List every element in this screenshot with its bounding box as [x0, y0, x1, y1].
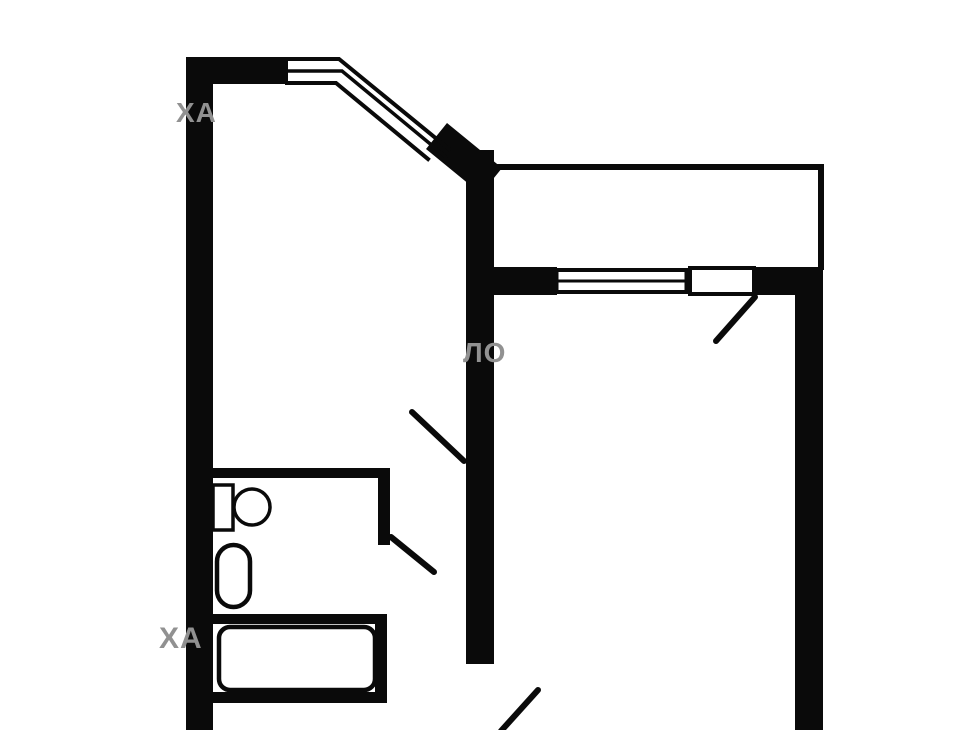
floor-plan-canvas: ХА ЛО ХА	[0, 0, 954, 730]
toilet	[217, 545, 250, 607]
sink-bowl	[234, 489, 270, 525]
bathroom-wall-top	[213, 468, 390, 478]
watermark-fragment-bottom: ХА	[159, 622, 203, 655]
wall-interior-vertical	[466, 150, 494, 664]
bathtub	[219, 627, 375, 690]
wall-right	[795, 267, 823, 730]
watermark-fragment-center: ЛО	[463, 337, 506, 368]
balcony-window	[555, 268, 690, 294]
bathroom-wall-right	[378, 468, 390, 545]
balcony-door-panel	[690, 268, 754, 294]
tub-niche-wall-top	[213, 614, 387, 624]
floor-plan-drawing: ХА ЛО ХА	[0, 0, 954, 730]
watermark-fragment-top: ХА	[176, 97, 217, 128]
balcony-outline-top	[488, 164, 824, 170]
sink-pedestal	[213, 485, 233, 530]
balcony-parapet-left	[493, 267, 557, 295]
wall-top	[186, 57, 288, 84]
balcony-outline-right	[818, 164, 824, 270]
tub-niche-wall-bottom	[213, 692, 387, 703]
